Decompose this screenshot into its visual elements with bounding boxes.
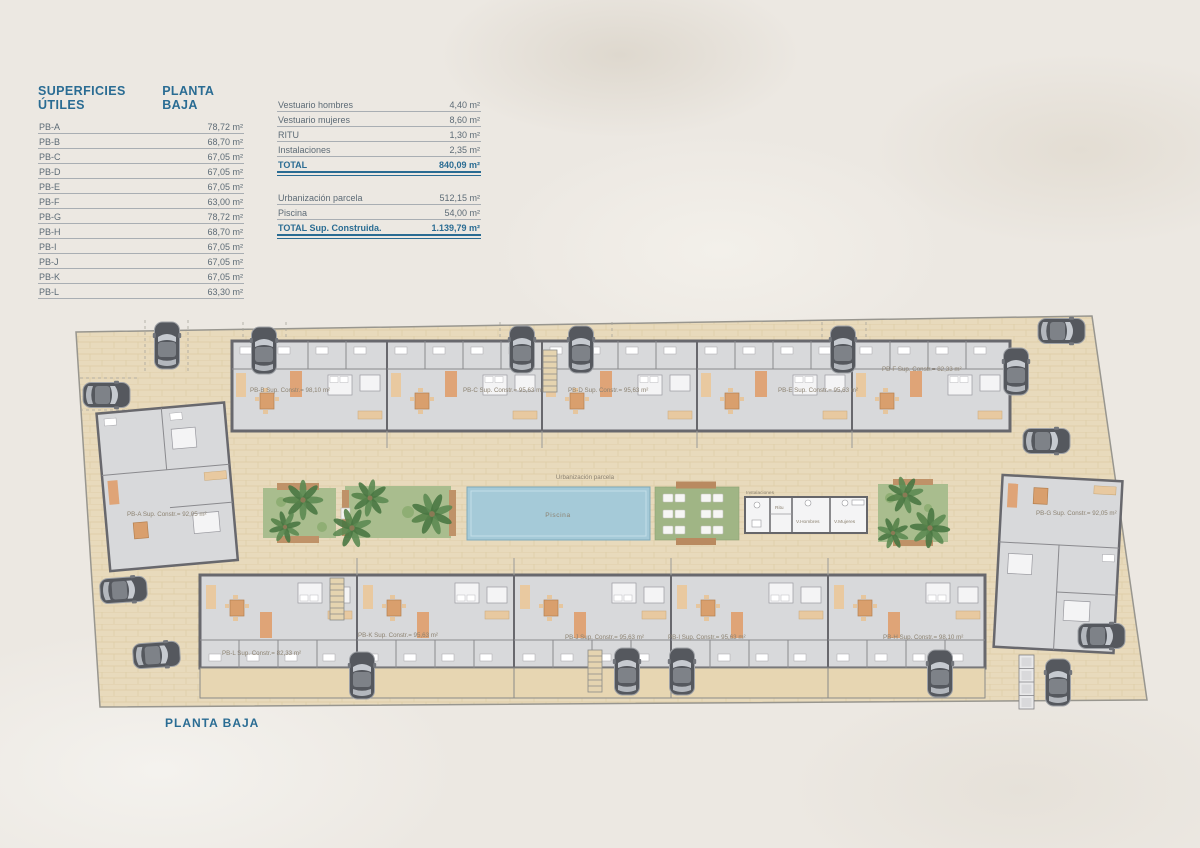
pergola-sun-deck xyxy=(655,482,739,546)
car-icon xyxy=(926,650,954,697)
unit-label-pb-k: PB-K Sup. Constr.= 95,63 m² xyxy=(358,632,438,639)
stairs-icon xyxy=(588,650,602,692)
stairs-icon xyxy=(543,350,557,392)
unit-label-pb-j: PB-J Sup. Constr.= 95,63 m² xyxy=(565,634,644,641)
unit-pb-a-wing xyxy=(97,403,238,572)
car-icon xyxy=(348,652,376,699)
instalaciones-label: Instalaciones xyxy=(746,490,775,496)
car-icon xyxy=(668,648,696,695)
palm-tree-icon xyxy=(283,480,324,521)
unit-label-pb-e: PB-E Sup. Constr.= 95,63 m² xyxy=(778,387,858,394)
car-icon xyxy=(250,327,278,374)
car-icon xyxy=(1002,348,1030,395)
car-icon xyxy=(1023,427,1070,455)
unit-label-pb-l: PB-L Sup. Constr.= 82,33 m² xyxy=(222,650,301,657)
parcel-label: Urbanización parcela xyxy=(556,474,615,481)
car-icon xyxy=(829,326,857,373)
sheet: SUPERFICIES ÚTILES PLANTA BAJA PB-A78,72… xyxy=(0,0,1200,848)
car-icon xyxy=(1038,317,1085,345)
unit-label-pb-g: PB-G Sup. Constr.= 92,05 m² xyxy=(1036,510,1117,517)
car-icon xyxy=(83,381,130,409)
storage-lockers-icon xyxy=(1019,655,1034,709)
unit-label-pb-i: PB-I Sup. Constr.= 95,63 m² xyxy=(668,634,746,641)
car-icon xyxy=(132,639,181,671)
car-icon xyxy=(153,322,181,369)
unit-label-pb-a: PB-A Sup. Constr.= 92,05 m² xyxy=(127,511,207,518)
car-icon xyxy=(1078,622,1125,650)
vestuario-hombres-label: V.Hombres xyxy=(796,519,820,525)
vestuario-mujeres-label: V.Mujeres xyxy=(834,519,856,525)
building-top-strip xyxy=(232,341,1010,448)
ritu-label: Ritu xyxy=(775,505,784,511)
car-icon xyxy=(99,574,148,606)
plan-caption: PLANTA BAJA xyxy=(165,716,259,730)
car-icon xyxy=(1044,659,1072,706)
car-icon xyxy=(567,326,595,373)
pool-label: Piscina xyxy=(545,512,570,519)
unit-label-pb-c: PB-C Sup. Constr.= 95,63 m² xyxy=(463,387,543,394)
car-icon xyxy=(613,648,641,695)
unit-label-pb-d: PB-D Sup. Constr.= 95,63 m² xyxy=(568,387,648,394)
unit-label-pb-h: PB-H Sup. Constr.= 98,10 m² xyxy=(883,634,963,641)
car-icon xyxy=(508,326,536,373)
unit-label-pb-b: PB-B Sup. Constr.= 98,10 m² xyxy=(250,387,330,394)
facilities-block: Instalaciones Ritu V.Hombres V.Mujeres xyxy=(745,490,867,533)
stairs-icon xyxy=(330,578,344,620)
pool: Piscina xyxy=(467,487,650,540)
unit-label-pb-f: PB-F Sup. Constr.= 82,33 m² xyxy=(882,366,962,373)
